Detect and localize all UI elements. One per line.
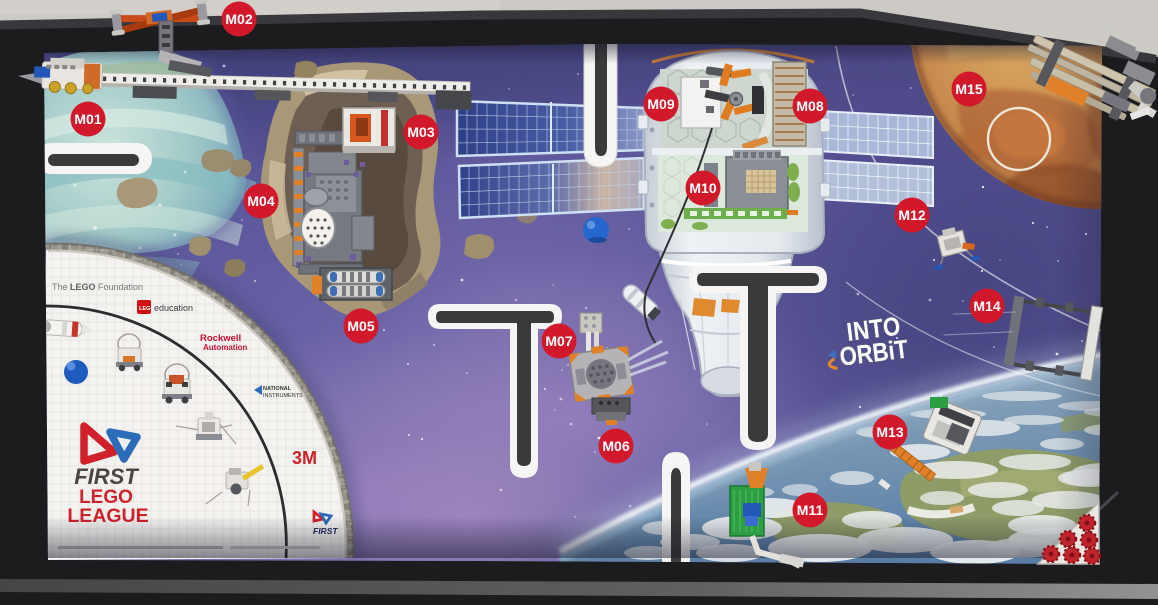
svg-text:M15: M15 <box>955 81 982 97</box>
svg-text:M07: M07 <box>545 333 572 349</box>
svg-text:M05: M05 <box>347 318 374 334</box>
svg-text:M14: M14 <box>973 298 1000 314</box>
svg-text:M09: M09 <box>647 96 674 112</box>
svg-text:M12: M12 <box>898 207 925 223</box>
svg-text:INSTRUMENTS: INSTRUMENTS <box>263 393 303 399</box>
svg-text:M01: M01 <box>74 111 101 127</box>
svg-text:M02: M02 <box>225 11 252 27</box>
svg-text:NATIONAL: NATIONAL <box>263 386 292 392</box>
svg-text:education: education <box>154 303 193 313</box>
svg-text:M06: M06 <box>602 438 629 454</box>
svg-text:M11: M11 <box>797 502 824 518</box>
svg-text:M03: M03 <box>407 124 434 140</box>
svg-text:M04: M04 <box>247 193 274 209</box>
svg-text:FIRST: FIRST <box>74 464 139 489</box>
svg-text:LEGO: LEGO <box>139 306 155 312</box>
svg-text:The LEGO Foundation: The LEGO Foundation <box>52 282 143 292</box>
svg-text:M13: M13 <box>876 424 903 440</box>
svg-text:M10: M10 <box>689 180 716 196</box>
svg-text:M08: M08 <box>796 98 823 114</box>
svg-text:Automation: Automation <box>203 343 248 352</box>
svg-text:3M: 3M <box>292 448 317 468</box>
